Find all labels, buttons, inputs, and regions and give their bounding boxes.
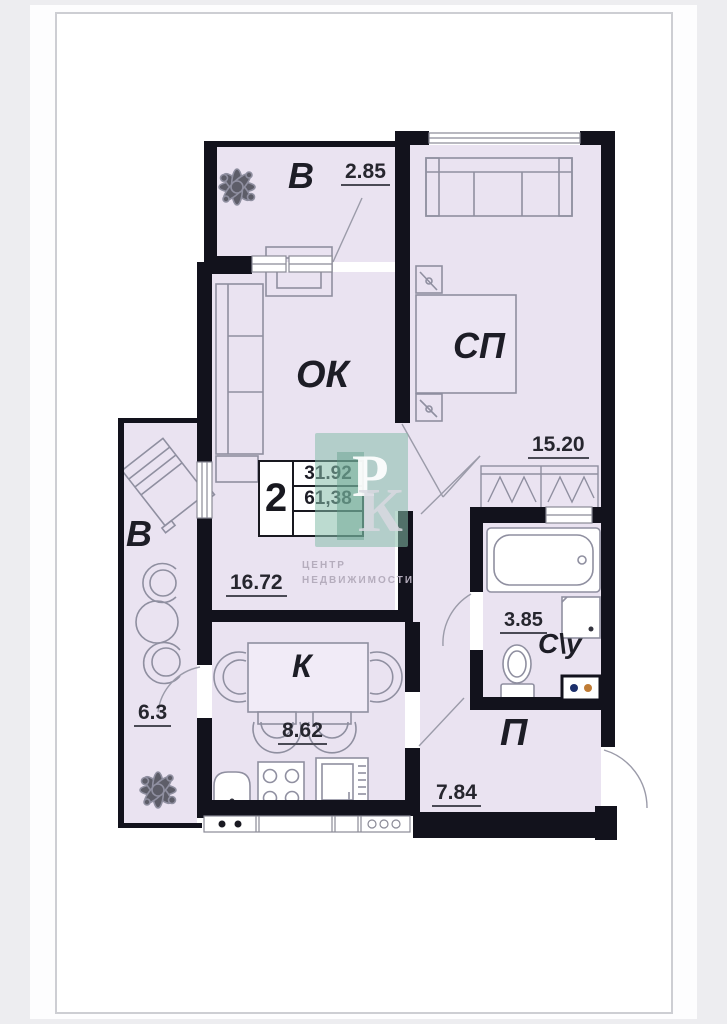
stamp-rooms-count: 2 <box>260 462 294 535</box>
room-label-living: ОК <box>296 356 349 394</box>
room-label-balcony-top: В <box>288 158 314 194</box>
room-label-bathroom: С\у <box>538 630 582 658</box>
room-area-bedroom: 15.20 <box>528 434 589 459</box>
toilet <box>501 645 534 701</box>
watermark-caption-line1: ЦЕНТР <box>302 558 346 573</box>
room-area-balcony-top: 2.85 <box>341 161 390 186</box>
bathtub <box>487 528 600 592</box>
plant-top-balcony <box>219 169 255 205</box>
room-label-balcony-left: В <box>126 516 152 552</box>
room-label-kitchen: К <box>292 650 312 682</box>
vent-box <box>562 676 600 700</box>
floor-plan-page: { "plan": { "rooms": { "balcony_top": {"… <box>0 0 727 1024</box>
room-label-hall: П <box>500 714 527 752</box>
room-area-balcony-left: 6.3 <box>134 702 171 727</box>
room-area-hall: 7.84 <box>432 782 481 807</box>
plant-left-balcony <box>140 772 176 808</box>
watermark-caption-line2: НЕДВИЖИМОСТИ <box>302 573 414 588</box>
watermark-letter-k: К <box>358 480 403 542</box>
room-label-bedroom: СП <box>453 328 505 364</box>
room-area-living: 16.72 <box>226 572 287 597</box>
room-area-kitchen: 8.62 <box>278 720 327 745</box>
